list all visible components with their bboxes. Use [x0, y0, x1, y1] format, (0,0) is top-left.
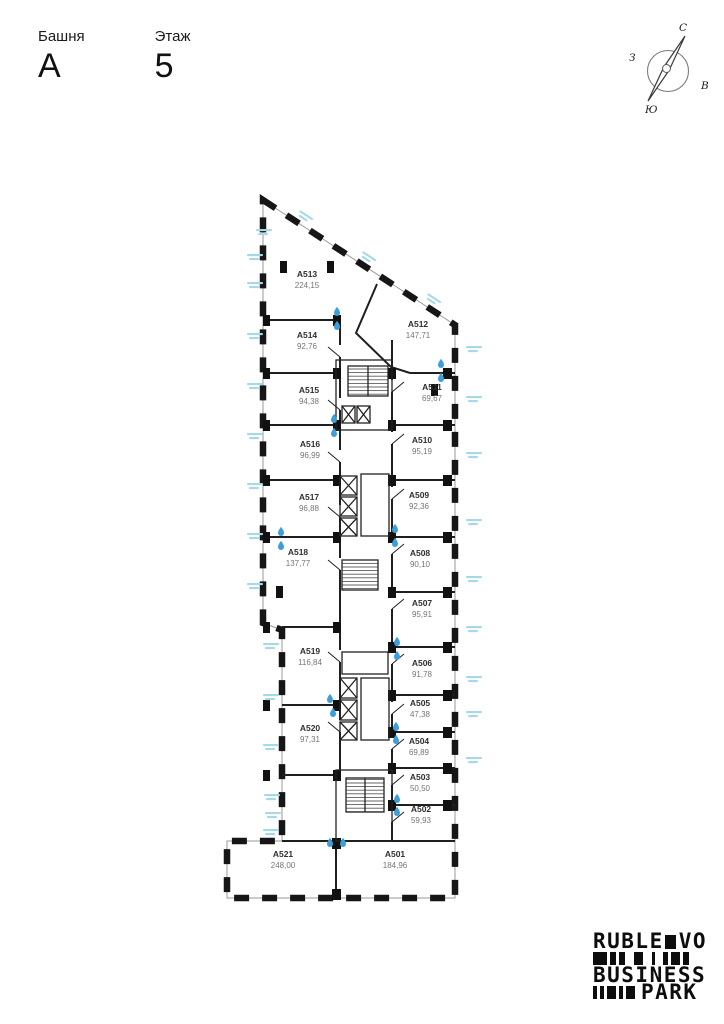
- facade-annotation: [466, 452, 482, 458]
- unit-area: 69,89: [409, 748, 430, 757]
- facade-annotation: [247, 433, 263, 439]
- unit-number: A513: [297, 269, 318, 279]
- unit-number: A516: [300, 439, 321, 449]
- unit-area: 59,93: [411, 816, 432, 825]
- logo-block-icon: [665, 935, 676, 949]
- unit-area: 95,91: [412, 610, 433, 619]
- unit-area: 137,77: [286, 559, 311, 568]
- unit-area: 47,38: [410, 710, 431, 719]
- facade-annotation: [425, 293, 442, 307]
- logo-word-vo: VO: [679, 933, 707, 950]
- floor-plan: A501184,96A50259,93A50350,50A50469,89A50…: [0, 0, 724, 1024]
- facade-annotation: [263, 744, 279, 750]
- facade-annotation: [263, 643, 279, 649]
- unit-area: 94,38: [299, 397, 320, 406]
- unit-number: A510: [412, 435, 433, 445]
- facade-annotation: [247, 483, 263, 489]
- logo-bar: [619, 986, 623, 999]
- logo-word-park: PARK: [641, 984, 698, 1001]
- logo-barcode-row: [593, 985, 635, 999]
- unit-number: A501: [385, 849, 406, 859]
- facade-annotation: [466, 576, 482, 582]
- facade-annotation: [466, 757, 482, 763]
- unit-number: A509: [409, 490, 430, 500]
- unit-number: A508: [410, 548, 431, 558]
- unit-number: A506: [412, 658, 433, 668]
- logo-line-1: RUBLEVO: [593, 933, 717, 950]
- unit-area: 97,31: [300, 735, 321, 744]
- unit-area: 116,84: [298, 658, 322, 667]
- unit-number: A503: [410, 772, 431, 782]
- facade-annotation: [466, 676, 482, 682]
- facade-annotation: [466, 346, 482, 352]
- unit-number: A502: [411, 804, 432, 814]
- logo-bar: [607, 986, 616, 999]
- facade-annotation: [263, 694, 279, 700]
- logo-word-ruble: RUBLE: [593, 933, 664, 950]
- facade-annotation: [264, 794, 280, 800]
- unit-area: 91,78: [412, 670, 433, 679]
- unit-number: A507: [412, 598, 433, 608]
- unit-number: A505: [410, 698, 431, 708]
- unit-number: A519: [300, 646, 321, 656]
- unit-number: A521: [273, 849, 294, 859]
- facade-annotation: [466, 519, 482, 525]
- unit-number: A515: [299, 385, 320, 395]
- unit-number: A511: [422, 382, 442, 392]
- unit-area: 248,00: [271, 861, 296, 870]
- facade-annotation: [466, 396, 482, 402]
- facade-annotation: [466, 626, 482, 632]
- unit-area: 224,15: [295, 281, 320, 290]
- facade-annotation: [466, 711, 482, 717]
- unit-number: A514: [297, 330, 318, 340]
- unit-area: 69,67: [422, 394, 443, 403]
- unit-area: 90,10: [410, 560, 431, 569]
- unit-area: 96,99: [300, 451, 321, 460]
- unit-number: A517: [299, 492, 320, 502]
- logo-bar: [593, 986, 597, 999]
- facade-annotation: [265, 812, 281, 818]
- rublevo-business-park-logo: RUBLEVO BUSINESS PARK: [593, 933, 717, 1001]
- unit-number: A512: [408, 319, 429, 329]
- logo-bar: [626, 986, 635, 999]
- unit-number: A504: [409, 736, 430, 746]
- unit-area: 50,50: [410, 784, 431, 793]
- unit-area: 147,71: [406, 331, 431, 340]
- unit-area: 184,96: [383, 861, 408, 870]
- unit-area: 92,76: [297, 342, 318, 351]
- unit-number: A518: [288, 547, 309, 557]
- unit-area: 95,19: [412, 447, 433, 456]
- floor-plan-page: Башня A Этаж 5 С Ю З В: [0, 0, 724, 1024]
- stair-treads: [342, 560, 378, 590]
- unit-area: 96,88: [299, 504, 320, 513]
- facade-annotation: [263, 829, 279, 835]
- logo-bar: [600, 986, 604, 999]
- unit-number: A520: [300, 723, 321, 733]
- unit-area: 92,36: [409, 502, 430, 511]
